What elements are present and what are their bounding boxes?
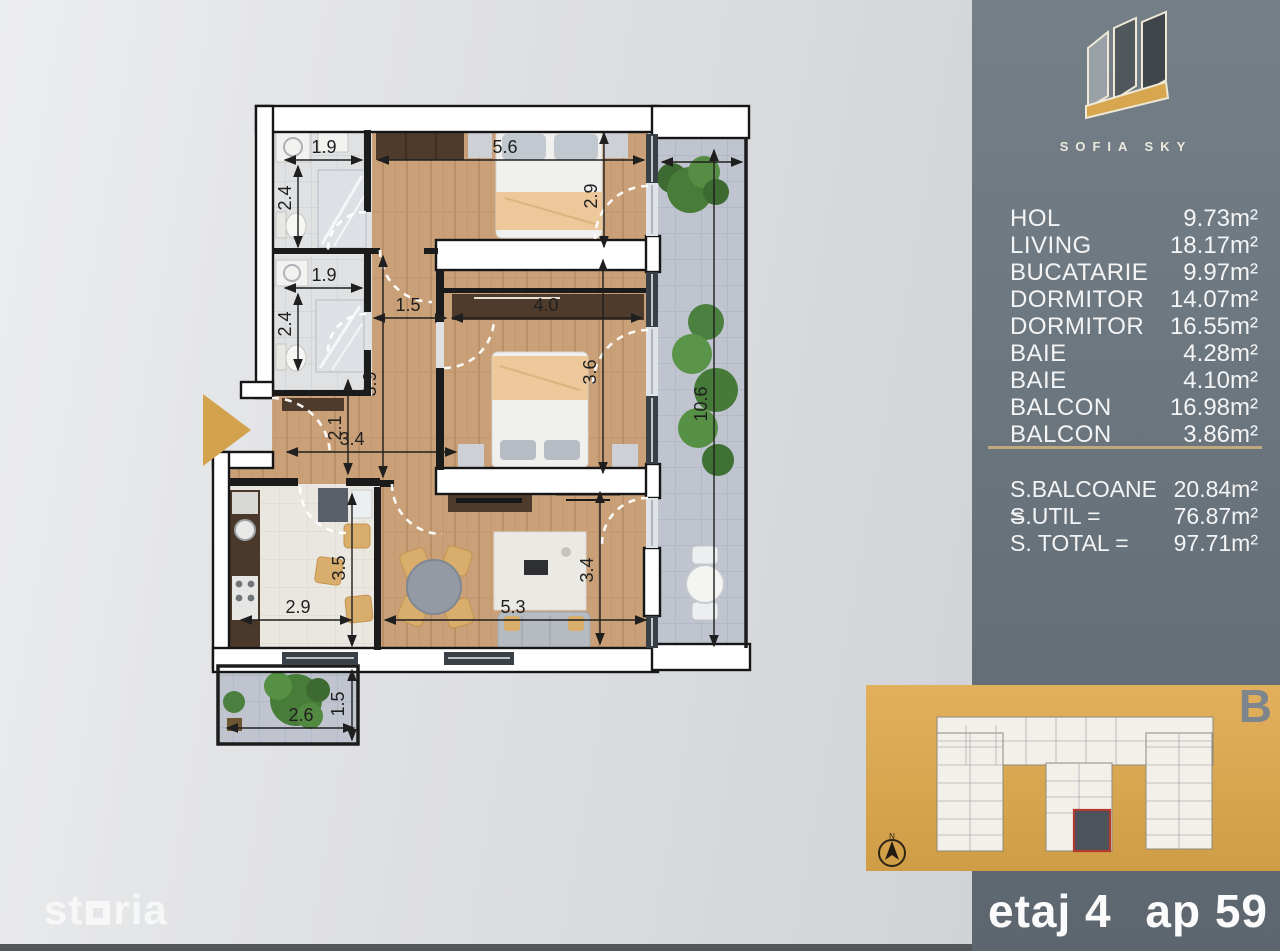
- dimension-label: 1.9: [311, 265, 336, 285]
- room-row: BALCON3.86m²: [1010, 421, 1258, 448]
- room-row: BALCON16.98m²: [1010, 394, 1258, 421]
- listing-image: 1.92.41.92.45.62.91.54.03.63.92.13.43.52…: [0, 0, 1280, 951]
- storia-o-glyph: [86, 901, 110, 925]
- room-area: 3.86m²: [1183, 421, 1258, 448]
- room-row: BUCATARIE9.97m²: [1010, 259, 1258, 286]
- room-row: DORMITOR14.07m²: [1010, 286, 1258, 313]
- room-name: BALCON: [1010, 421, 1112, 448]
- dimension-label: 2.4: [275, 311, 295, 336]
- building-footprint: [937, 717, 1213, 851]
- dimension-label: 2.4: [275, 185, 295, 210]
- apartment-footer: etaj 4 ap 59: [972, 871, 1280, 951]
- room-name: DORMITOR: [1010, 286, 1144, 313]
- compass-icon: N: [879, 832, 905, 866]
- rug-sofa: [494, 532, 590, 650]
- highlighted-apartment: [1074, 810, 1110, 851]
- dimension-label: 3.6: [580, 359, 600, 384]
- bottom-shadow-strip: [0, 944, 972, 951]
- room-row: DORMITOR16.55m²: [1010, 313, 1258, 340]
- room-name: LIVING: [1010, 232, 1092, 259]
- total-value: 76.87m²: [1174, 503, 1258, 530]
- total-label: S.BALCOANE =: [1010, 476, 1174, 503]
- room-area: 16.55m²: [1170, 313, 1258, 340]
- room-area: 9.97m²: [1183, 259, 1258, 286]
- dimension-label: 1.9: [311, 137, 336, 157]
- total-label: S. TOTAL =: [1010, 530, 1129, 557]
- room-name: BAIE: [1010, 367, 1067, 394]
- separator-line: [988, 446, 1262, 449]
- room-area: 18.17m²: [1170, 232, 1258, 259]
- dimension-label: 2.9: [581, 183, 601, 208]
- building-keyplan-panel: B: [866, 685, 1280, 871]
- dimension-label: 2.9: [285, 597, 310, 617]
- area-totals: S.BALCOANE =20.84m²S.UTIL =76.87m²S. TOT…: [1010, 476, 1258, 557]
- room-area: 4.10m²: [1183, 367, 1258, 394]
- dimension-label: 3.4: [339, 429, 364, 449]
- storia-watermark: stria: [44, 886, 168, 934]
- room-area: 16.98m²: [1170, 394, 1258, 421]
- room-row: HOL9.73m²: [1010, 205, 1258, 232]
- total-row: S.BALCOANE =20.84m²: [1010, 476, 1258, 503]
- balcony-table-set: [686, 546, 724, 620]
- total-value: 97.71m²: [1174, 530, 1258, 557]
- total-row: S. TOTAL =97.71m²: [1010, 530, 1258, 557]
- total-label: S.UTIL =: [1010, 503, 1101, 530]
- room-row: LIVING18.17m²: [1010, 232, 1258, 259]
- bed: [492, 352, 588, 468]
- floor-label: etaj 4: [988, 884, 1112, 938]
- room-row: BAIE4.28m²: [1010, 340, 1258, 367]
- room-name: HOL: [1010, 205, 1061, 232]
- dimension-label: 5.6: [492, 137, 517, 157]
- floor-plan: 1.92.41.92.45.62.91.54.03.63.92.13.43.52…: [0, 0, 972, 951]
- dimension-label: 2.6: [288, 705, 313, 725]
- room-area: 14.07m²: [1170, 286, 1258, 313]
- total-row: S.UTIL =76.87m²: [1010, 503, 1258, 530]
- dimension-label: 1.5: [328, 691, 348, 716]
- room-name: DORMITOR: [1010, 313, 1144, 340]
- room-area-list: HOL9.73m²LIVING18.17m²BUCATARIE9.97m²DOR…: [1010, 205, 1258, 448]
- sofia-sky-logo-icon: [1066, 10, 1186, 130]
- room-row: BAIE4.10m²: [1010, 367, 1258, 394]
- dimension-label: 5.3: [500, 597, 525, 617]
- room-area: 9.73m²: [1183, 205, 1258, 232]
- brand-logo: SOFIA SKY: [972, 10, 1280, 154]
- dimension-label: 3.5: [329, 555, 349, 580]
- compass-north-label: N: [889, 832, 895, 841]
- dimension-label: 4.0: [533, 295, 558, 315]
- wardrobe: [376, 132, 464, 160]
- room-area: 4.28m²: [1183, 340, 1258, 367]
- apartment-label: ap 59: [1145, 884, 1268, 938]
- total-value: 20.84m²: [1174, 476, 1258, 503]
- room-name: BAIE: [1010, 340, 1067, 367]
- brand-name: SOFIA SKY: [972, 139, 1280, 154]
- dimension-label: 10.6: [691, 386, 711, 421]
- building-block-letter: B: [1239, 679, 1272, 733]
- dimension-label: 3.4: [577, 557, 597, 582]
- building-keyplan: N: [866, 685, 1280, 871]
- dimension-label: 3.9: [360, 371, 380, 396]
- room-name: BALCON: [1010, 394, 1112, 421]
- room-name: BUCATARIE: [1010, 259, 1148, 286]
- dimension-label: 1.5: [395, 295, 420, 315]
